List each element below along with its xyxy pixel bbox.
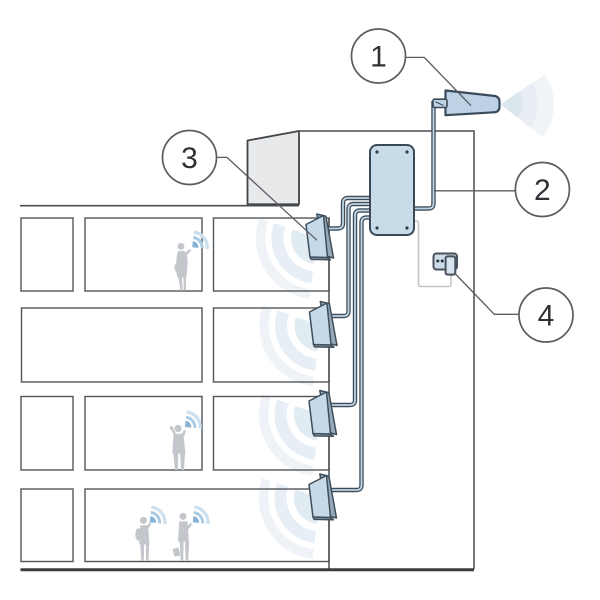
svg-text:1: 1 bbox=[370, 41, 387, 74]
svg-text:4: 4 bbox=[538, 300, 555, 333]
svg-text:3: 3 bbox=[181, 142, 198, 175]
svg-text:2: 2 bbox=[534, 174, 551, 207]
